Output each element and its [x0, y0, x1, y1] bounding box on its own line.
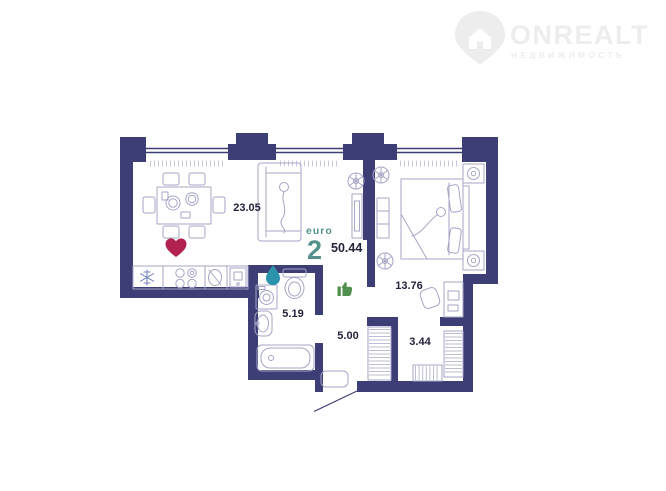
clothes-rack — [444, 331, 463, 377]
wall-segment — [120, 143, 133, 297]
wall-segment — [462, 137, 498, 162]
wall-segment — [463, 283, 473, 388]
wall-segment — [357, 381, 473, 392]
dining-table — [143, 173, 225, 238]
wall-segment — [352, 133, 384, 146]
bathtub — [257, 345, 314, 371]
wall-segment — [486, 160, 498, 283]
total-area: 50.44 — [331, 241, 362, 255]
desk — [419, 282, 463, 317]
logo-brand: ONREALT — [510, 20, 649, 50]
logo-tagline: НЕДВИЖИМОСТЬ — [511, 50, 625, 60]
snowflake-icon — [141, 270, 154, 285]
wall-segment — [343, 144, 397, 160]
room-count: 2 — [307, 235, 322, 265]
plant-icon — [348, 173, 364, 189]
floorplan-page: ONREALT НЕДВИЖИМОСТЬ — [0, 0, 666, 491]
plan-summary: euro 2 50.44 — [306, 225, 362, 296]
wall-segment — [228, 144, 276, 160]
stove-burners — [176, 269, 196, 288]
nightstand — [463, 164, 484, 183]
kitchen-sink — [209, 270, 222, 286]
wall-segment — [440, 317, 463, 326]
area-label-bedroom: 13.76 — [395, 280, 423, 292]
sofa — [258, 163, 301, 241]
counter-appliance — [230, 268, 246, 287]
area-label-bathroom: 5.19 — [282, 308, 303, 320]
hallway: 5.00 — [314, 327, 391, 412]
shoe-rack — [413, 365, 442, 381]
wall-segment — [367, 240, 375, 287]
heart-icon — [166, 238, 187, 257]
washing-machine — [256, 285, 277, 309]
area-label-wardrobe: 3.44 — [409, 336, 431, 348]
wardrobe-room: 3.44 — [409, 331, 463, 381]
dresser — [377, 198, 389, 238]
area-label-living: 23.05 — [233, 202, 261, 214]
entrance-door-swing — [314, 391, 357, 412]
floorplan-svg: ONREALT НЕДВИЖИМОСТЬ — [0, 0, 666, 491]
toilet — [283, 269, 306, 299]
wall-segment — [315, 265, 323, 315]
rug — [321, 371, 348, 387]
kitchen-counter — [133, 266, 248, 289]
plant-icon — [373, 167, 389, 183]
hall-closet — [368, 327, 391, 380]
thumbs-up-icon — [338, 282, 353, 296]
windows — [146, 149, 462, 164]
area-label-hallway: 5.00 — [337, 330, 358, 342]
plant-icon — [377, 253, 393, 269]
nightstand — [463, 251, 484, 270]
wall-segment — [391, 317, 398, 383]
onrealt-logo: ONREALT НЕДВИЖИМОСТЬ — [455, 11, 649, 65]
wall-segment — [463, 274, 498, 284]
tv-stand — [352, 194, 362, 238]
wall-segment — [236, 133, 268, 146]
bathroom: 5.19 — [255, 265, 314, 371]
double-bed — [401, 179, 469, 259]
